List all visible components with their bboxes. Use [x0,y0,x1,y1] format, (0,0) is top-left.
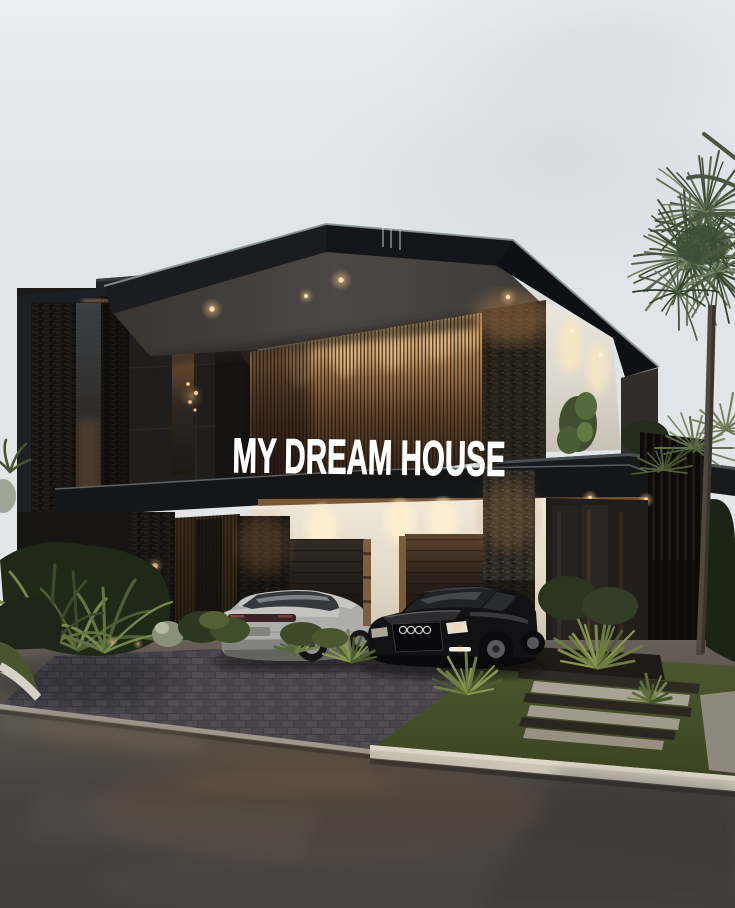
svg-text:MY DREAM HOUSE: MY DREAM HOUSE [232,429,506,487]
